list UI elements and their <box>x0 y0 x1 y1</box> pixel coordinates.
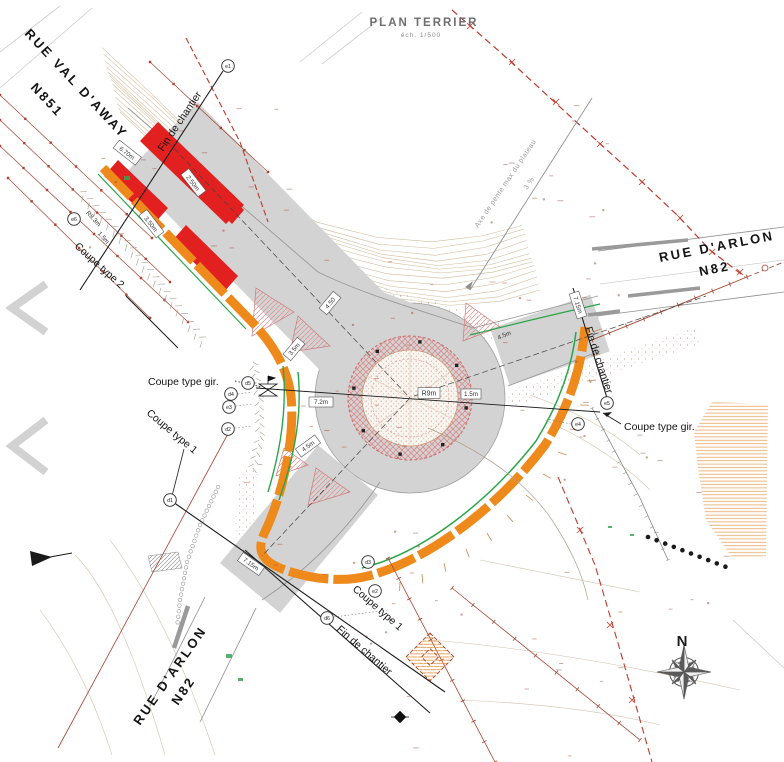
dim-r9: R9m <box>422 390 437 397</box>
street-rue-d-arlon-ne: RUE D'ARLON <box>658 228 776 265</box>
marker-d4: d4 <box>228 392 234 398</box>
wall-hatch-block <box>148 552 182 572</box>
marker-d5: d5 <box>245 381 251 387</box>
marker-d1: d1 <box>167 498 173 504</box>
street-ref-n851: N851 <box>28 80 67 120</box>
label-coupe-gir-left: Coupe type gir. <box>148 376 219 388</box>
margin-chevrons <box>12 284 46 472</box>
slope-hatch-area <box>694 402 768 559</box>
label-coupe-gir-right: Coupe type gir. <box>624 421 695 433</box>
plan-title: PLAN TERRIER <box>370 17 479 29</box>
dim-15-c: 1.5m <box>464 391 478 398</box>
marker-d6: d6 <box>324 616 330 622</box>
tree-dot-row <box>646 535 728 569</box>
marker-e2: e2 <box>372 589 378 595</box>
marker-e5: e5 <box>604 401 610 407</box>
marker-e1: e1 <box>225 64 231 70</box>
marker-e3: e3 <box>226 405 232 411</box>
street-rue-d-arlon-sw: RUE D'ARLON <box>130 623 210 728</box>
direction-arrow <box>30 551 52 566</box>
section-arrowhead <box>603 412 612 417</box>
street-ref-n82-ne: N82 <box>698 258 732 279</box>
marker-e4: e4 <box>575 422 581 428</box>
plan-canvas: Axe de pente max du plateau 3 % 6.70m 2.… <box>0 0 784 762</box>
dim-r83: R8.3m <box>84 210 102 228</box>
compass-rose <box>657 645 711 699</box>
marker-e6: e6 <box>71 217 77 223</box>
marker-d3: d3 <box>365 560 371 566</box>
label-coupe-1-left: Coupe type 1 <box>144 407 200 456</box>
direction-arrow-tail <box>50 553 72 557</box>
survey-point-circle <box>762 265 768 271</box>
slope-axis: Axe de pente max du plateau 3 % <box>465 98 592 290</box>
marker-d2: d2 <box>225 427 231 433</box>
dim-72: 7.2m <box>314 399 328 406</box>
reserve-diamond <box>406 633 454 681</box>
boundary-se <box>558 477 652 762</box>
north-label: N <box>677 633 688 650</box>
label-coupe-2: Coupe type 2 <box>72 240 127 291</box>
boundary-ne <box>452 10 745 277</box>
title-block: PLAN TERRIER éch. 1/500 <box>370 17 479 39</box>
plan-scale: éch. 1/500 <box>401 32 441 39</box>
site-plan: Axe de pente max du plateau 3 % 6.70m 2.… <box>0 0 784 762</box>
